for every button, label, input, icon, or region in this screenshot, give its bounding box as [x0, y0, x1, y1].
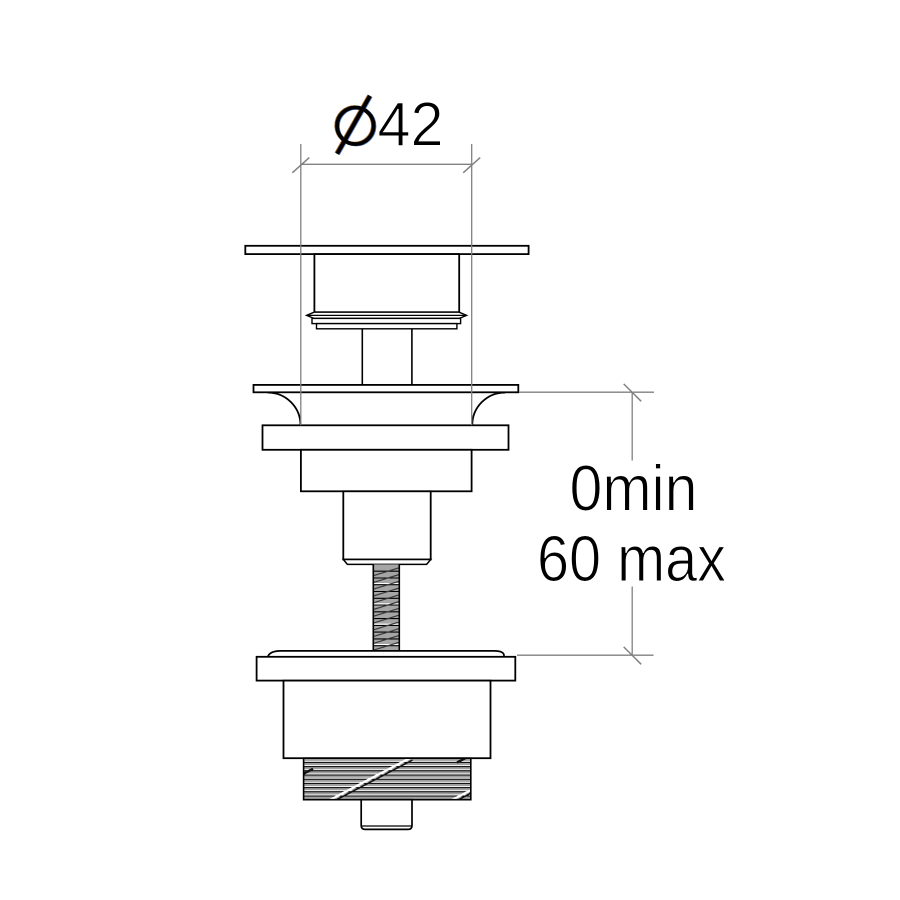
svg-text:42: 42 [378, 91, 444, 160]
svg-text:60 max: 60 max [537, 522, 726, 595]
svg-text:0min: 0min [570, 452, 698, 525]
